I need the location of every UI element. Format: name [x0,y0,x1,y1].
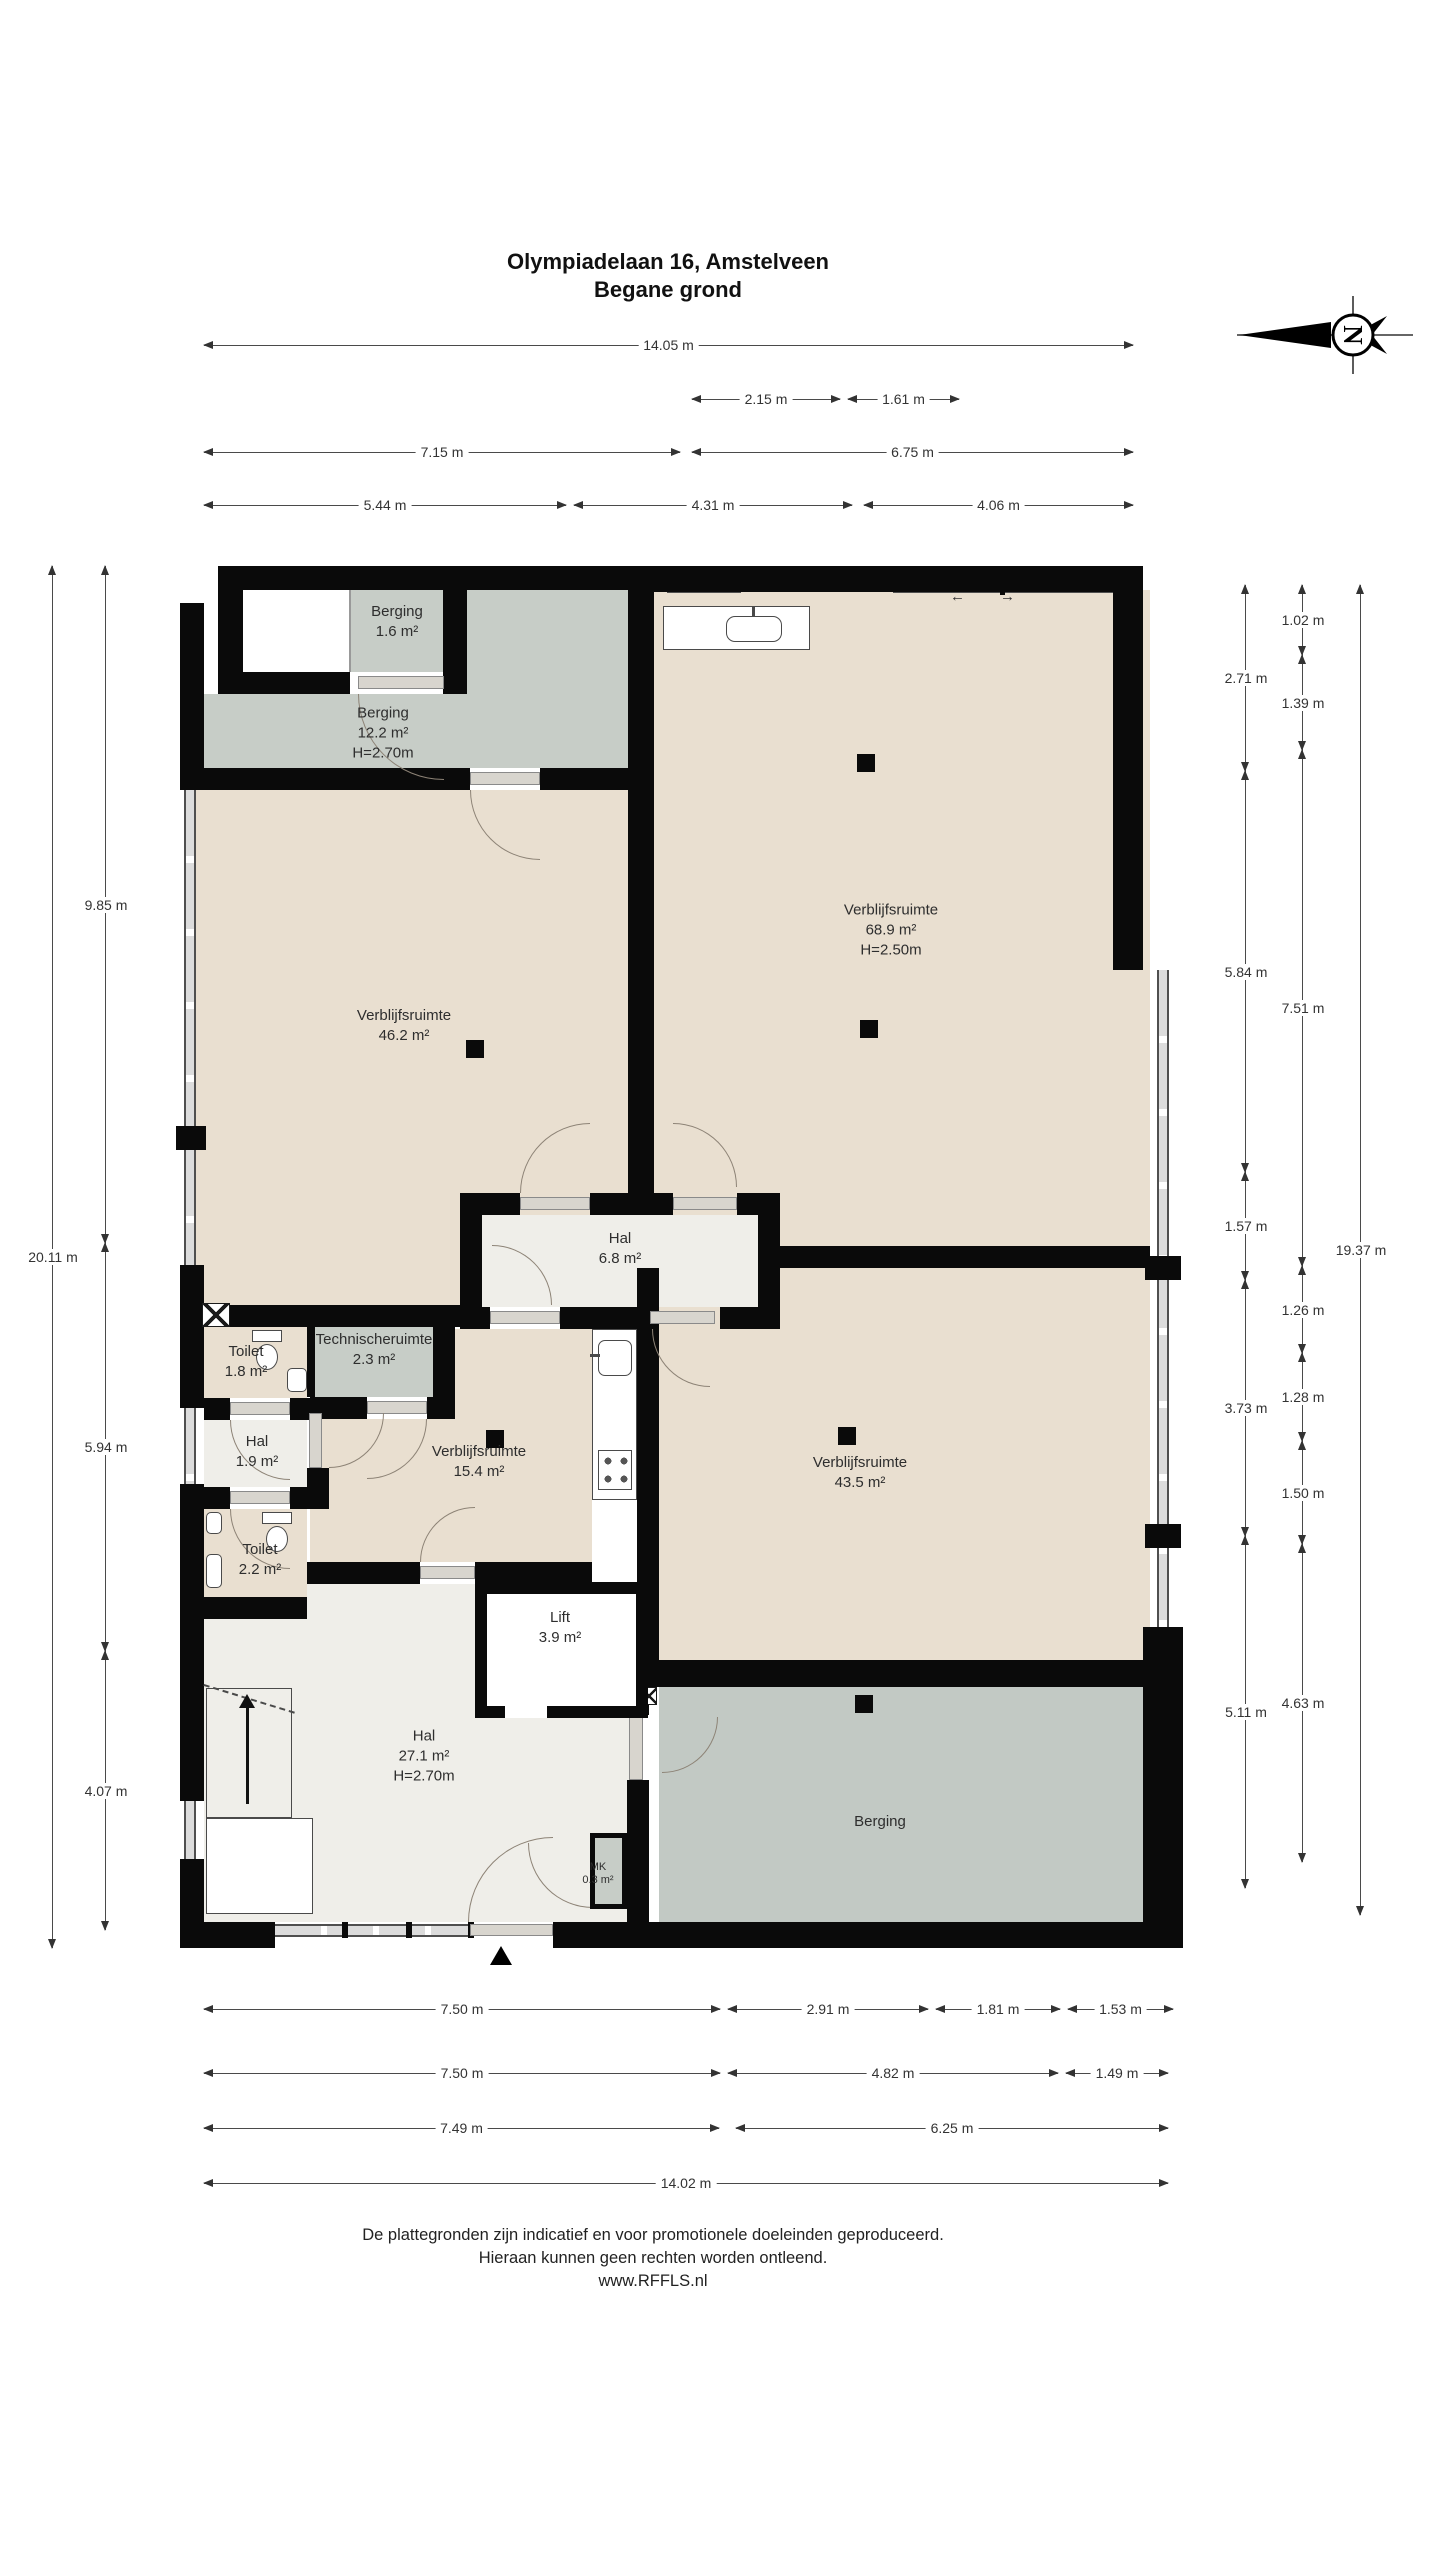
wall [204,1597,307,1619]
room-fill-hal271b [307,1584,475,1619]
wall [654,566,1143,592]
dimension: 20.11 m [52,566,53,1948]
wall [218,672,350,694]
dimension-label: 7.50 m [436,2001,489,2017]
wall [307,1562,420,1584]
room-area: 1.8 m² [225,1362,268,1382]
counter-sink-icon [726,616,782,642]
arrowhead-down-icon [1298,1853,1306,1863]
dimension-label: 5.94 m [80,1439,133,1455]
dimension-label: 7.49 m [435,2120,488,2136]
room-label-verblijfsruimte-435: Verblijfsruimte43.5 m² [813,1453,907,1493]
dimension-label: 1.02 m [1277,612,1330,628]
room-label-mk: MK0.3 m² [582,1861,613,1887]
arrowhead-left-icon [203,2069,213,2077]
dimension: 5.84 m [1245,771,1246,1172]
door-opening [230,1402,290,1415]
washbasin-icon [206,1554,222,1588]
wall [1145,1256,1181,1280]
wall [460,1307,490,1329]
wall [180,603,204,790]
door-opening [490,1311,560,1324]
wall [180,1922,275,1948]
dimension: 9.85 m [105,566,106,1243]
room-label-verblijfsruimte-462: Verblijfsruimte46.2 m² [357,1006,451,1046]
arrowhead-up-icon [1298,1543,1306,1553]
window [1157,970,1169,1660]
dimension: 7.50 m [204,2009,720,2010]
wall [475,1562,592,1584]
kitchen-sink-icon [598,1340,632,1376]
dimension: 4.31 m [574,505,852,506]
room-name: Verblijfsruimte [432,1442,526,1462]
sliding-door-arrow-icon: → [1000,588,1015,605]
wall [1145,1524,1181,1548]
room-name: Berging [854,1812,906,1832]
room-name: Verblijfsruimte [357,1006,451,1026]
dimension-label: 2.71 m [1220,670,1273,686]
room-name: Berging [371,602,423,622]
arrowhead-left-icon [735,2124,745,2132]
arrowhead-up-icon [1298,1265,1306,1275]
dimension-label: 6.25 m [926,2120,979,2136]
wall [406,1922,412,1938]
arrowhead-left-icon [863,501,873,509]
compass-letter: N [1338,325,1368,345]
room-label-technischeruimte: Technischeruimte2.3 m² [316,1330,433,1370]
room-label-berging-zuid: Berging [854,1812,906,1832]
counter-faucet-icon [752,606,755,616]
room-area: 1.6 m² [371,622,423,642]
wall [176,1126,206,1150]
wall [590,1193,673,1215]
dimension-label: 4.82 m [867,2065,920,2081]
window [184,1801,196,1859]
arrowhead-up-icon [1241,584,1249,594]
room-name: Verblijfsruimte [844,900,938,920]
arrowhead-left-icon [935,2005,945,2013]
wall [540,768,628,790]
room-label-lift: Lift3.9 m² [539,1608,582,1648]
dimension: 1.26 m [1302,1266,1303,1353]
dimension: 4.06 m [864,505,1133,506]
arrowhead-right-icon [843,501,853,509]
arrowhead-up-icon [1298,749,1306,759]
arrowhead-right-icon [1164,2005,1174,2013]
dimension: 3.73 m [1245,1280,1246,1536]
washbasin-icon [206,1512,222,1534]
dimension: 4.07 m [105,1651,106,1930]
disclaimer-line-3: www.RFFLS.nl [253,2270,1053,2293]
door-opening [309,1413,322,1468]
dimension-label: 1.53 m [1094,2001,1147,2017]
dimension: 1.50 m [1302,1441,1303,1544]
room-area: 46.2 m² [357,1026,451,1046]
dimension-label: 7.51 m [1277,1000,1330,1016]
wall [204,1487,230,1509]
structural-column [857,754,875,772]
arrowhead-up-icon [101,565,109,575]
door-opening [673,1197,737,1210]
dimension-label: 3.73 m [1220,1400,1273,1416]
arrowhead-right-icon [1124,448,1134,456]
dimension-label: 1.50 m [1277,1485,1330,1501]
arrowhead-right-icon [1159,2069,1169,2077]
room-name: Toilet [239,1540,282,1560]
dimension: 1.53 m [1068,2009,1173,2010]
arrowhead-right-icon [1124,501,1134,509]
arrowhead-left-icon [203,501,213,509]
dimension-label: 1.57 m [1220,1218,1273,1234]
dimension-label: 7.15 m [416,444,469,460]
room-divider [349,590,351,672]
dimension-label: 14.05 m [638,337,699,353]
arrowhead-up-icon [101,1650,109,1660]
wall [180,1265,204,1408]
dimension: 7.15 m [204,452,680,453]
arrowhead-right-icon [711,2069,721,2077]
dimension-label: 4.06 m [972,497,1025,513]
dimension-label: 2.91 m [802,2001,855,2017]
entrance-marker-icon [490,1946,512,1965]
dimension-label: 1.28 m [1277,1389,1330,1405]
arrowhead-left-icon [727,2005,737,2013]
arrowhead-left-icon [1065,2069,1075,2077]
door-opening [629,1717,643,1780]
room-area: 1.9 m² [236,1452,279,1472]
door-opening [420,1566,475,1579]
arrowhead-up-icon [1356,584,1364,594]
kitchen-faucet-icon [590,1354,600,1357]
dimension-label: 5.11 m [1220,1704,1272,1720]
structural-column [466,1040,484,1058]
dimension-label: 1.49 m [1091,2065,1144,2081]
arrowhead-left-icon [1067,2005,1077,2013]
floorplan-page: Olympiadelaan 16, Amstelveen Begane gron… [0,0,1440,2560]
page-title: Olympiadelaan 16, Amstelveen Begane gron… [318,248,1018,304]
door-opening [230,1491,290,1504]
arrowhead-down-icon [48,1939,56,1949]
wall [218,566,654,590]
room-label-hal-68: Hal6.8 m² [599,1229,642,1269]
dimension-label: 4.31 m [687,497,740,513]
wall [342,1922,348,1938]
dimension-label: 1.26 m [1277,1302,1330,1318]
dimension: 1.81 m [936,2009,1060,2010]
room-label-toilet-18: Toilet1.8 m² [225,1342,268,1382]
door-opening [358,676,444,689]
arrowhead-right-icon [831,395,841,403]
wall [290,1398,310,1420]
arrowhead-left-icon [203,2005,213,2013]
room-name: Lift [539,1608,582,1628]
sliding-door-arrow-icon: ← [950,588,965,605]
dimension: 1.39 m [1302,655,1303,750]
arrowhead-right-icon [919,2005,929,2013]
room-area: 12.2 m² [352,723,413,743]
door-opening [470,772,540,785]
cooktop-icon [598,1450,632,1490]
structural-column [860,1020,878,1038]
wall [204,1398,230,1420]
door-opening [520,1197,590,1210]
room-area: 27.1 m² [393,1746,454,1766]
arrowhead-left-icon [573,501,583,509]
room-name: MK [582,1861,613,1874]
room-name: Hal [599,1229,642,1249]
arrowhead-left-icon [847,395,857,403]
dimension-label: 1.61 m [877,391,930,407]
dimension: 1.49 m [1066,2073,1168,2074]
room-name: Hal [393,1726,454,1746]
door-opening [650,1311,715,1324]
dimension-label: 6.75 m [886,444,939,460]
arrowhead-right-icon [1124,341,1134,349]
arrowhead-up-icon [1298,584,1306,594]
room-area: 43.5 m² [813,1473,907,1493]
arrowhead-right-icon [1159,2124,1169,2132]
room-fill-berging-122a [467,590,628,694]
arrowhead-right-icon [1159,2179,1169,2187]
dimension: 14.05 m [204,345,1133,346]
title-floor: Begane grond [318,276,1018,304]
compass-icon: N [1235,293,1415,378]
wall [627,1833,649,1922]
dimension: 2.71 m [1245,585,1246,771]
wall [427,1397,437,1419]
dimension-label: 1.81 m [972,2001,1025,2017]
dimension: 5.44 m [204,505,566,506]
lift-shaft [475,1582,648,1718]
wall [443,588,467,694]
dimension-label: 4.63 m [1277,1695,1330,1711]
arrowhead-right-icon [1051,2005,1061,2013]
arrowhead-left-icon [203,448,213,456]
stair-arrow-shaft [246,1708,249,1804]
arrowhead-up-icon [48,565,56,575]
dimension: 4.82 m [728,2073,1058,2074]
arrowhead-up-icon [1241,770,1249,780]
dimension-label: 9.85 m [80,897,133,913]
washbasin-icon [287,1368,307,1392]
dimension: 5.94 m [105,1243,106,1651]
stair-up-arrow-icon [239,1694,255,1708]
arrowhead-right-icon [711,2005,721,2013]
arrowhead-left-icon [203,2124,213,2132]
dimension-label: 5.44 m [359,497,412,513]
room-area: 6.8 m² [599,1249,642,1269]
arrowhead-up-icon [1298,654,1306,664]
dimension: 19.37 m [1360,585,1361,1915]
wall [649,1660,1150,1687]
window [184,1150,196,1265]
shaft-icon [202,1303,230,1327]
arrowhead-right-icon [950,395,960,403]
room-name: Verblijfsruimte [813,1453,907,1473]
door-opening [470,1924,553,1936]
room-height: H=2.70m [352,743,413,763]
room-area: 2.3 m² [316,1350,433,1370]
lift-door-gap [505,1706,547,1718]
room-area: 2.2 m² [239,1560,282,1580]
toilet-tank-icon [252,1330,282,1342]
title-address: Olympiadelaan 16, Amstelveen [318,248,1018,276]
dimension-label: 20.11 m [23,1249,83,1265]
room-label-hal-271: Hal27.1 m²H=2.70m [393,1726,454,1785]
dimension: 6.25 m [736,2128,1168,2129]
dimension: 7.49 m [204,2128,719,2129]
room-name: Hal [236,1432,279,1452]
room-area: 0.3 m² [582,1874,613,1887]
structural-column [838,1427,856,1445]
wall [628,590,654,1215]
wall [720,1307,780,1329]
dimension-label: 2.15 m [740,391,793,407]
wall [1113,566,1143,970]
dimension-label: 7.50 m [436,2065,489,2081]
arrowhead-down-icon [1241,1879,1249,1889]
window [275,1924,470,1937]
room-label-hal-19: Hal1.9 m² [236,1432,279,1472]
dimension: 6.75 m [692,452,1133,453]
arrowhead-left-icon [727,2069,737,2077]
wall [553,1922,1143,1948]
dimension: 1.57 m [1245,1172,1246,1280]
arrowhead-right-icon [1049,2069,1059,2077]
dimension: 7.50 m [204,2073,720,2074]
room-name: Technischeruimte [316,1330,433,1350]
wall [290,1487,307,1509]
dimension: 1.61 m [848,399,959,400]
arrowhead-left-icon [691,395,701,403]
arrowhead-left-icon [203,2179,213,2187]
dimension-label: 19.37 m [1331,1242,1392,1258]
room-height: H=2.70m [393,1766,454,1786]
room-area: 68.9 m² [844,920,938,940]
room-fill-berging-zuid [659,1687,1150,1922]
room-label-berging-122: Berging12.2 m²H=2.70m [352,703,413,762]
dimension: 14.02 m [204,2183,1168,2184]
arrowhead-up-icon [1298,1440,1306,1450]
dimension-label: 14.02 m [656,2175,717,2191]
arrowhead-left-icon [203,341,213,349]
room-name: Berging [352,703,413,723]
dimension: 2.91 m [728,2009,928,2010]
arrowhead-down-icon [101,1921,109,1931]
room-area: 15.4 m² [432,1462,526,1482]
disclaimer-line-1: De plattegronden zijn indicatief en voor… [253,2224,1053,2247]
arrowhead-right-icon [671,448,681,456]
room-label-verblijfsruimte-689: Verblijfsruimte68.9 m²H=2.50m [844,900,938,959]
dimension: 4.63 m [1302,1544,1303,1862]
structural-column [855,1695,873,1713]
stair-landing [206,1818,313,1914]
disclaimer: De plattegronden zijn indicatief en voor… [253,2224,1053,2292]
wall [204,1305,460,1327]
window [184,790,196,1126]
window [184,1408,196,1484]
dimension: 1.28 m [1302,1353,1303,1441]
arrowhead-left-icon [691,448,701,456]
room-label-berging-16: Berging1.6 m² [371,602,423,642]
dimension: 1.02 m [1302,585,1303,655]
room-height: H=2.50m [844,940,938,960]
dimension: 5.11 m [1245,1536,1246,1888]
room-fill-niche [243,590,350,672]
dimension-label: 1.39 m [1277,695,1330,711]
arrowhead-up-icon [1298,1352,1306,1362]
room-label-verblijfsruimte-154: Verblijfsruimte15.4 m² [432,1442,526,1482]
room-label-toilet-22: Toilet2.2 m² [239,1540,282,1580]
arrowhead-up-icon [101,1242,109,1252]
wall [180,1484,204,1801]
arrowhead-right-icon [557,501,567,509]
room-name: Toilet [225,1342,268,1362]
room-area: 3.9 m² [539,1628,582,1648]
dimension: 2.15 m [692,399,840,400]
dimension-label: 5.84 m [1220,964,1273,980]
dimension-label: 4.07 m [80,1783,133,1799]
arrowhead-up-icon [1241,1279,1249,1289]
arrowhead-right-icon [710,2124,720,2132]
disclaimer-line-2: Hieraan kunnen geen rechten worden ontle… [253,2247,1053,2270]
toilet-tank-icon [262,1512,292,1524]
wall [307,1468,329,1509]
arrowhead-up-icon [1241,1535,1249,1545]
arrowhead-down-icon [1356,1906,1364,1916]
arrowhead-up-icon [1241,1171,1249,1181]
dimension: 7.51 m [1302,750,1303,1266]
wall [780,1246,1150,1268]
wall [307,1312,315,1397]
